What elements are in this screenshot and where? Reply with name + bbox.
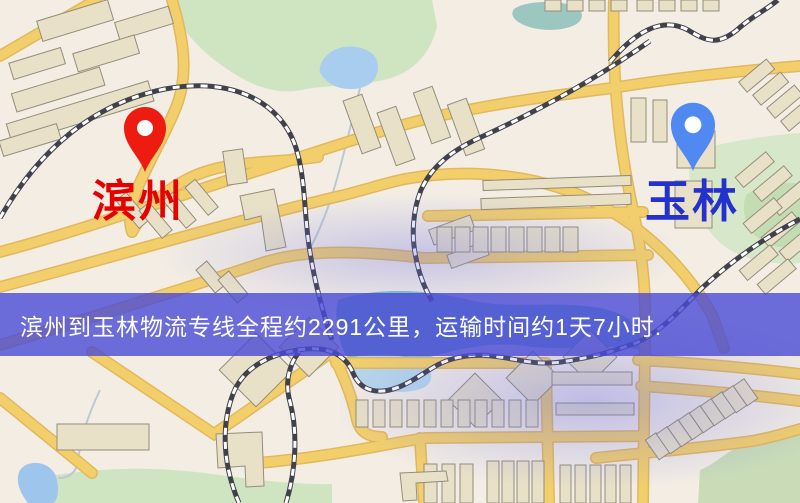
route-banner: 滨州到玉林物流专线全程约2291公里，运输时间约1天7小时.: [0, 293, 800, 356]
origin-pin-hole: [137, 120, 153, 136]
map-canvas[interactable]: 滨州 玉林: [0, 0, 800, 503]
map-screenshot: 滨州 玉林 滨州到玉林物流专线全程约2291公里，运输时间约1天7小时.: [0, 0, 800, 503]
destination-pin-hole: [685, 116, 702, 133]
route-banner-text: 滨州到玉林物流专线全程约2291公里，运输时间约1天7小时.: [0, 308, 662, 342]
destination-label: 玉林: [645, 177, 739, 227]
origin-label: 滨州: [92, 177, 184, 226]
